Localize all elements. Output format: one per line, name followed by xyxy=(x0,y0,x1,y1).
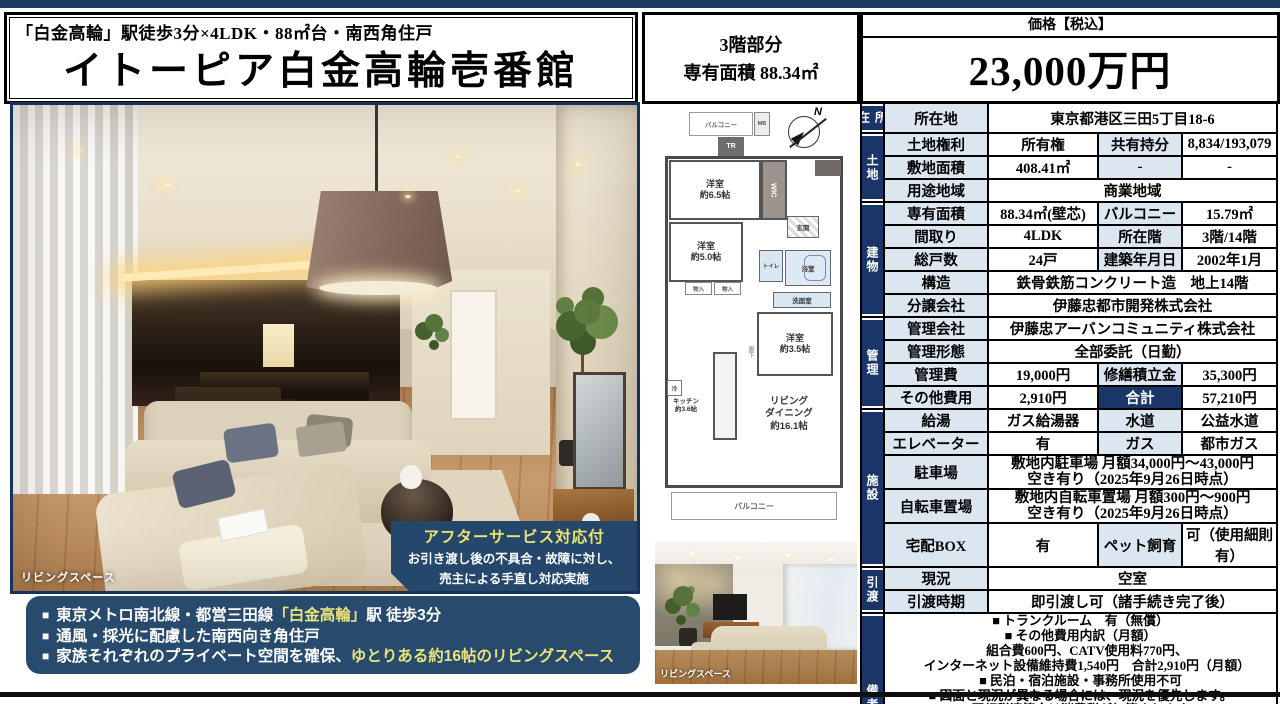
remark-line: ■ トランクルーム 有（無償） xyxy=(887,614,1274,629)
main-photo: リビングスペース アフターサービス対応付 お引き渡し後の不具合・故障に対し、 売… xyxy=(10,102,640,594)
spec-value: 商業地域 xyxy=(988,179,1277,202)
section-label: 所在 xyxy=(862,106,883,130)
closet: 物入 xyxy=(714,282,741,295)
spec-value: 有 xyxy=(988,432,1098,455)
spec-label: 専有面積 xyxy=(884,202,988,225)
spec-value: 57,210円 xyxy=(1182,386,1277,409)
room-size: 約6.5帖 xyxy=(700,190,731,200)
section-label: 引渡 xyxy=(862,570,883,610)
spec-label: 敷地面積 xyxy=(884,156,988,179)
section-label: 土地 xyxy=(862,136,883,199)
flyer-page: 「白金高輪」駅徒歩3分×4LDK・88㎡台・南西角住戸 イトーピア白金高輪壱番館… xyxy=(0,0,1280,704)
remarks-cell: ■ トランクルーム 有（無償） ■ その他費用内訳（月額） 組合費600円、CA… xyxy=(884,613,1277,704)
ceiling-downlights xyxy=(689,552,694,555)
spec-value: 有 xyxy=(988,523,1098,567)
table-row: 駐車場 敷地内駐車場 月額34,000円～43,000円 空き有り（2025年9… xyxy=(861,455,1277,489)
room-label: リビング xyxy=(770,396,808,407)
table-row: 所在 所在地 東京都港区三田5丁目18-6 xyxy=(861,103,1277,133)
spec-label: その他費用 xyxy=(884,386,988,409)
section-cell: 所在 xyxy=(861,103,884,133)
room-label: 洋室 xyxy=(697,241,715,251)
section-cell: 管理 xyxy=(861,317,884,409)
bottom-rule xyxy=(0,692,1280,697)
kitchen-label: キッチン 約3.6帖 xyxy=(661,398,711,415)
property-title-box: 「白金高輪」駅徒歩3分×4LDK・88㎡台・南西角住戸 イトーピア白金高輪壱番館 xyxy=(4,12,638,104)
spec-value: 2,910円 xyxy=(988,386,1098,409)
highlight-item: ■家族それぞれのプライベート空間を確保、ゆとりある約16帖のリビングスペース xyxy=(42,647,624,668)
secondary-photo: リビングスペース xyxy=(655,542,857,684)
spec-label: 所在階 xyxy=(1098,225,1182,248)
property-spec-table: 所在 所在地 東京都港区三田5丁目18-6 土地 土地権利 所有権 共有持分 8… xyxy=(860,102,1276,690)
highlights-banner: ■東京メトロ南北線・都営三田線「白金高輪」駅 徒歩3分 ■通風・採光に配慮した南… xyxy=(26,596,640,674)
highlight-text: 通風・採光に配慮した南西向き角住戸 xyxy=(56,628,320,645)
spec-label: 分譲会社 xyxy=(884,294,988,317)
hallway-label: 廊下 xyxy=(743,346,755,358)
spec-label: 構造 xyxy=(884,271,988,294)
highlight-text-yellow: 「白金高輪」 xyxy=(273,607,366,624)
spec-value: 88.34㎡(壁芯) xyxy=(988,202,1098,225)
spec-label: 用途地域 xyxy=(884,179,988,202)
property-title-box-inner: 「白金高輪」駅徒歩3分×4LDK・88㎡台・南西角住戸 イトーピア白金高輪壱番館 xyxy=(9,17,633,99)
room-size: 約3.5帖 xyxy=(780,344,811,354)
plant-pot xyxy=(679,628,697,646)
room-label: ダイニング xyxy=(765,408,813,419)
living-dining-label: リビング ダイニング 約16.1帖 xyxy=(739,396,839,433)
table-row: 土地 土地権利 所有権 共有持分 8,834/193,079 xyxy=(861,133,1277,156)
spec-label: 自転車置場 xyxy=(884,489,988,523)
room-label: 洋室 xyxy=(786,333,804,343)
spec-label: 駐車場 xyxy=(884,455,988,489)
wall-block xyxy=(815,160,841,176)
spec-value: 公益水道 xyxy=(1182,409,1277,432)
spec-label: 修繕積立金 xyxy=(1098,363,1182,386)
spec-value: 東京都港区三田5丁目18-6 xyxy=(988,103,1277,133)
section-label: 建物 xyxy=(862,205,883,314)
entrance: 玄関 xyxy=(787,216,819,238)
price-box: 価格【税込】 23,000万円 xyxy=(860,12,1280,104)
room-size: 約16.1帖 xyxy=(770,421,808,432)
section-cell: 建物 xyxy=(861,202,884,317)
table-row: 総戸数 24戸 建築年月日 2002年1月 xyxy=(861,248,1277,271)
remark-line: 組合費600円、CATV使用料770円、 xyxy=(887,644,1274,659)
spec-label: 共有持分 xyxy=(1098,133,1182,156)
spec-value: 所有権 xyxy=(988,133,1098,156)
spec-value: 鉄骨鉄筋コンクリート造 地上14階 xyxy=(988,271,1277,294)
bullet-square-icon: ■ xyxy=(42,629,49,643)
table-row: 備考 ■ トランクルーム 有（無償） ■ その他費用内訳（月額） 組合費600円… xyxy=(861,613,1277,704)
bullet-square-icon: ■ xyxy=(42,649,49,663)
spec-label: 給湯 xyxy=(884,409,988,432)
wic: WIC xyxy=(761,160,787,220)
spec-label: 水道 xyxy=(1098,409,1182,432)
floor-plan: バルコニー MB TR N 洋室 約6.5帖 WIC 玄関 洋室 約5.0帖 物… xyxy=(655,104,857,528)
spec-value-line: 敷地内自転車置場 月額300円～900円 xyxy=(991,490,1274,506)
table-row: 自転車置場 敷地内自転車置場 月額300円～900円 空き有り（2025年9月2… xyxy=(861,489,1277,523)
trunk-room: TR xyxy=(718,137,744,156)
room-size: 約5.0帖 xyxy=(691,252,722,262)
after-service-badge: アフターサービス対応付 お引き渡し後の不具合・故障に対し、 売主による手直し対応… xyxy=(391,521,637,591)
section-cell: 備考 xyxy=(861,613,884,704)
spec-value: 2002年1月 xyxy=(1182,248,1277,271)
toilet: トイレ xyxy=(759,250,783,282)
photo-caption: リビングスペース xyxy=(21,569,116,585)
bathroom: 浴室 xyxy=(785,250,831,286)
after-service-line: 売主による手直し対応実施 xyxy=(439,568,589,587)
spec-label: 総戸数 xyxy=(884,248,988,271)
table-row: 構造 鉄骨鉄筋コンクリート造 地上14階 xyxy=(861,271,1277,294)
spec-value: 35,300円 xyxy=(1182,363,1277,386)
room-3-5: 洋室 約3.5帖 xyxy=(757,312,833,376)
spec-label: 管理形態 xyxy=(884,340,988,363)
spec-value: 4LDK xyxy=(988,225,1098,248)
section-cell: 施設 xyxy=(861,409,884,567)
spec-label: エレベーター xyxy=(884,432,988,455)
spec-value: 全部委託（日勤） xyxy=(988,340,1277,363)
table-row: 敷地面積 408.41㎡ - - xyxy=(861,156,1277,179)
unit-summary-box: 3階部分 専有面積 88.34㎡ xyxy=(642,12,860,104)
spec-value: 即引渡し可（諸手続き完了後） xyxy=(988,590,1277,613)
table-row: 用途地域 商業地域 xyxy=(861,179,1277,202)
spec-value: 敷地内駐車場 月額34,000円～43,000円 空き有り（2025年9月26日… xyxy=(988,455,1277,489)
spec-value: 可（使用細則有） xyxy=(1182,523,1277,567)
table-row: 引渡 現況 空室 xyxy=(861,567,1277,590)
remark-line: ■ その他費用内訳（月額） xyxy=(887,629,1274,644)
price-label: 価格【税込】 xyxy=(863,15,1277,38)
spec-label: バルコニー xyxy=(1098,202,1182,225)
table-row: 建物 専有面積 88.34㎡(壁芯) バルコニー 15.79㎡ xyxy=(861,202,1277,225)
room-label: キッチン xyxy=(673,398,699,405)
table-row: 管理費 19,000円 修繕積立金 35,300円 xyxy=(861,363,1277,386)
highlight-text: 駅 徒歩3分 xyxy=(366,607,441,624)
spec-value: 8,834/193,079 xyxy=(1182,133,1277,156)
spec-value: 15.79㎡ xyxy=(1182,202,1277,225)
section-cell: 引渡 xyxy=(861,567,884,613)
spec-label: ペット飼育 xyxy=(1098,523,1182,567)
room-size: 約3.6帖 xyxy=(675,406,697,413)
table-row: 施設 給湯 ガス給湯器 水道 公益水道 xyxy=(861,409,1277,432)
top-accent-bar xyxy=(0,0,1280,8)
spec-label: 間取り xyxy=(884,225,988,248)
spec-label: ガス xyxy=(1098,432,1182,455)
meter-box: MB xyxy=(754,112,770,136)
spec-label: 建築年月日 xyxy=(1098,248,1182,271)
spec-label: 管理費 xyxy=(884,363,988,386)
plant xyxy=(673,586,693,606)
spec-value-line: 空き有り（2025年9月26日時点） xyxy=(991,506,1274,522)
table-row: 管理 管理会社 伊藤忠アーバンコミュニティ株式会社 xyxy=(861,317,1277,340)
spec-value: 伊藤忠都市開発株式会社 xyxy=(988,294,1277,317)
section-label: 管理 xyxy=(862,320,883,406)
table-row: 管理形態 全部委託（日勤） xyxy=(861,340,1277,363)
table-row: 引渡時期 即引渡し可（諸手続き完了後） xyxy=(861,590,1277,613)
spec-value-line: 敷地内駐車場 月額34,000円～43,000円 xyxy=(991,456,1274,472)
table-row: その他費用 2,910円 合計 57,210円 xyxy=(861,386,1277,409)
north-compass-icon xyxy=(788,116,820,148)
room-label: 洋室 xyxy=(706,179,724,189)
spec-label: 現況 xyxy=(884,567,988,590)
table-row: 間取り 4LDK 所在階 3階/14階 xyxy=(861,225,1277,248)
spec-label: 所在地 xyxy=(884,103,988,133)
spec-value: 3階/14階 xyxy=(1182,225,1277,248)
photo-vignette xyxy=(13,105,637,591)
spec-label: 引渡時期 xyxy=(884,590,988,613)
washroom: 洗面室 xyxy=(773,292,831,308)
after-service-line: お引き渡し後の不具合・故障に対し、 xyxy=(408,548,621,567)
spec-label: 土地権利 xyxy=(884,133,988,156)
spec-value: 19,000円 xyxy=(988,363,1098,386)
spec-value: 空室 xyxy=(988,567,1277,590)
room-5-0: 洋室 約5.0帖 xyxy=(669,222,743,282)
highlight-item: ■東京メトロ南北線・都営三田線「白金高輪」駅 徒歩3分 xyxy=(42,606,624,627)
table-row: 分譲会社 伊藤忠都市開発株式会社 xyxy=(861,294,1277,317)
spec-label: - xyxy=(1098,156,1182,179)
highlight-item: ■通風・採光に配慮した南西向き角住戸 xyxy=(42,627,624,648)
highlight-text-yellow: ゆとりある約16帖のリビングスペース xyxy=(351,648,614,665)
spec-label: 管理会社 xyxy=(884,317,988,340)
spec-value-line: 空き有り（2025年9月26日時点） xyxy=(991,472,1274,488)
highlight-text: 東京メトロ南北線・都営三田線 xyxy=(56,607,273,624)
tv-screen xyxy=(713,594,747,620)
property-title: イトーピア白金高輪壱番館 xyxy=(10,40,632,96)
spec-value: 都市ガス xyxy=(1182,432,1277,455)
spec-value: - xyxy=(1182,156,1277,179)
spec-value: 24戸 xyxy=(988,248,1098,271)
remark-line: インターネット設備維持費1,540円 合計2,910円（月額） xyxy=(887,659,1274,674)
after-service-title: アフターサービス対応付 xyxy=(423,525,604,547)
room-6-5: 洋室 約6.5帖 xyxy=(669,160,761,220)
remark-line: ■ 民泊・宿泊施設・事務所使用不可 xyxy=(887,674,1274,689)
spec-value: 敷地内自転車置場 月額300円～900円 空き有り（2025年9月26日時点） xyxy=(988,489,1277,523)
section-cell: 土地 xyxy=(861,133,884,202)
unit-area: 専有面積 88.34㎡ xyxy=(684,59,819,85)
unit-floor: 3階部分 xyxy=(720,31,783,57)
bullet-square-icon: ■ xyxy=(42,608,49,622)
spec-value: 伊藤忠アーバンコミュニティ株式会社 xyxy=(988,317,1277,340)
refrigerator-space: 冷 xyxy=(667,380,682,396)
spec-label-total: 合計 xyxy=(1098,386,1182,409)
price-value: 23,000万円 xyxy=(863,38,1277,95)
north-label: N xyxy=(814,106,822,118)
balcony-bottom: バルコニー xyxy=(671,492,837,520)
balcony-top: バルコニー xyxy=(689,112,753,136)
section-label: 施設 xyxy=(862,412,883,564)
highlight-text: 家族それぞれのプライベート空間を確保、 xyxy=(56,648,351,665)
closet: 物入 xyxy=(685,282,712,295)
spec-label: 宅配BOX xyxy=(884,523,988,567)
table-row: 宅配BOX 有 ペット飼育 可（使用細則有） xyxy=(861,523,1277,567)
photo-caption: リビングスペース xyxy=(660,667,731,680)
spec-value: 408.41㎡ xyxy=(988,156,1098,179)
spec-value: ガス給湯器 xyxy=(988,409,1098,432)
section-label: 備考 xyxy=(862,616,883,704)
kitchen-counter xyxy=(713,352,737,440)
table-row: エレベーター 有 ガス 都市ガス xyxy=(861,432,1277,455)
